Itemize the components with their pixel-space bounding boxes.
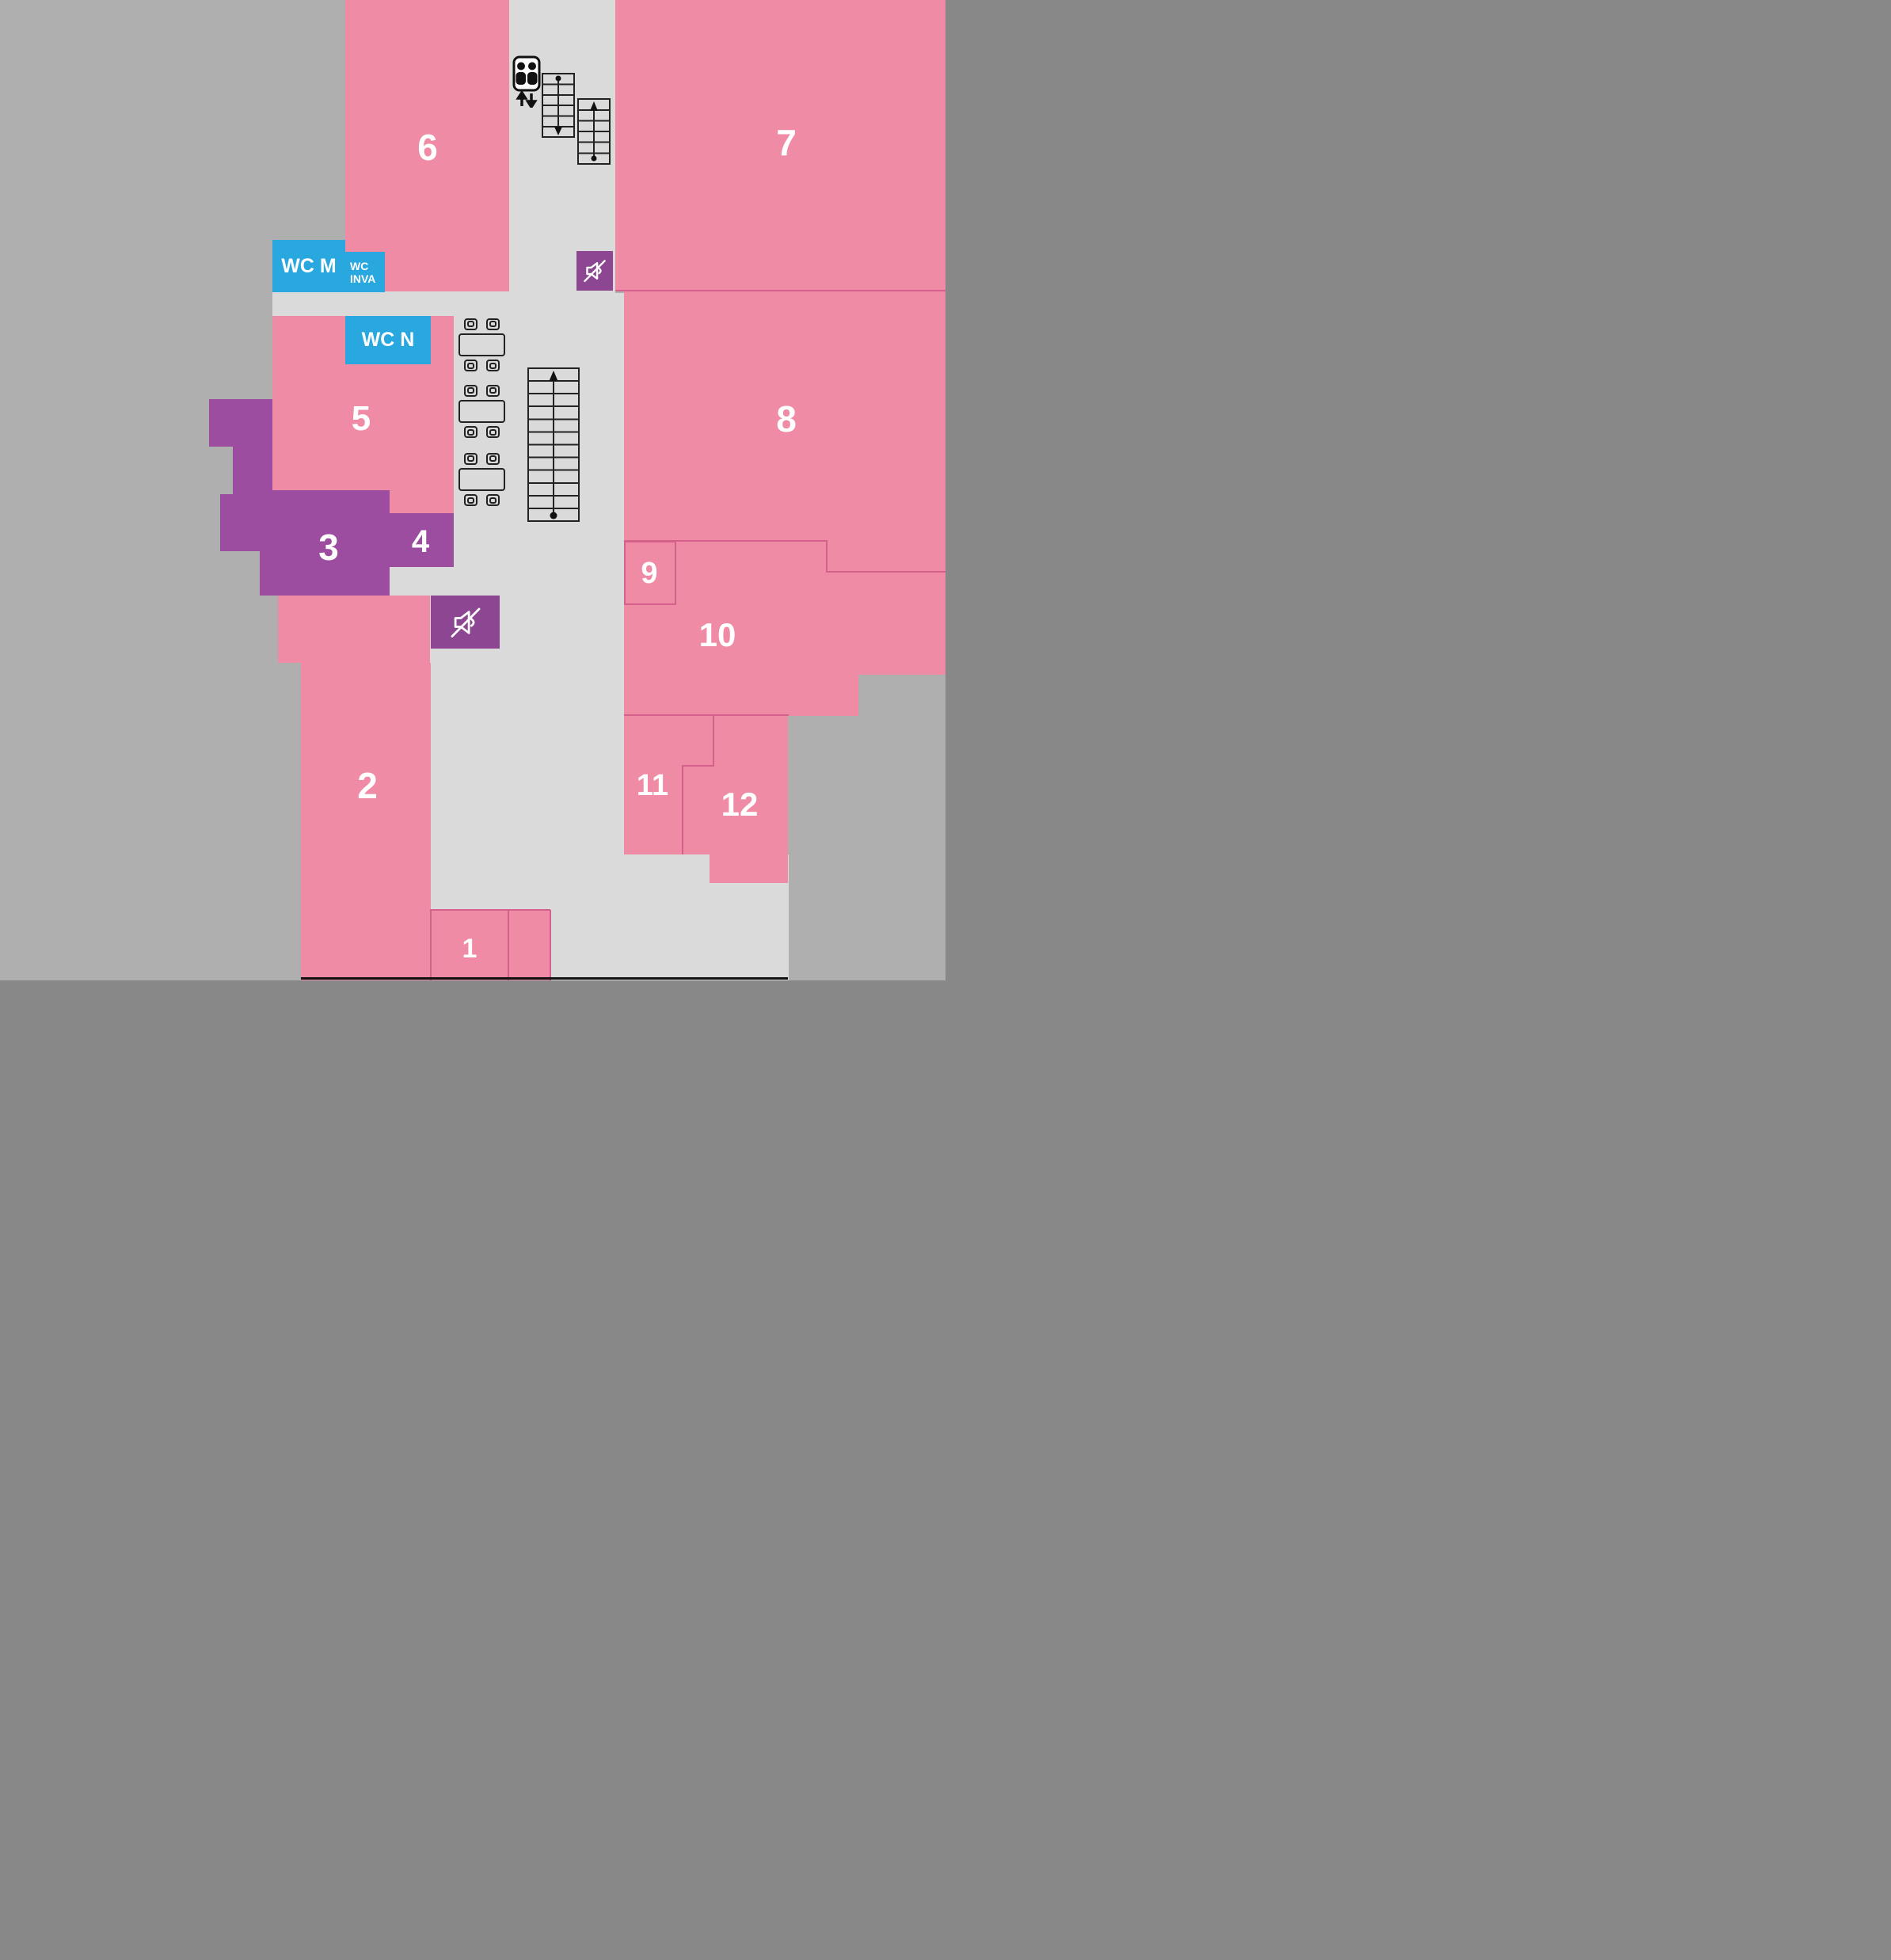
quiet-zone-box-bottom[interactable] [431,596,500,649]
wc-m-label: WC M [281,255,336,278]
table-group-1 [458,318,505,371]
border-room10-room11 [624,714,789,716]
border-right-block-right [550,910,551,980]
room-5-label: 5 [352,402,371,436]
room-2-upper[interactable] [278,596,430,663]
chair-icon [464,453,478,465]
room-5-extension[interactable] [390,490,454,513]
room-6-label: 6 [417,129,438,166]
room-3-label: 3 [318,529,339,565]
muted-speaker-icon [447,604,484,641]
table-group-3 [458,453,505,506]
room-12-lower[interactable] [710,854,788,883]
wc-n-label: WC N [362,329,415,352]
wc-n-room[interactable]: WC N [345,316,431,364]
border-room8-room10-left [624,540,828,542]
border-room7-room8 [615,290,945,291]
chair-icon [486,360,500,371]
chair-icon [486,426,500,438]
room-3-arm-top[interactable] [209,399,272,447]
building-bottom-edge [301,977,788,980]
room-11-label: 11 [637,771,668,801]
room-2-label: 2 [357,767,378,804]
border-room11-room12-h [682,765,714,767]
room-7-label: 7 [776,124,797,161]
room-10-lower[interactable] [624,675,858,716]
room-12-upper[interactable] [713,715,788,766]
chair-icon [464,360,478,371]
border-room11-room12-v2 [682,766,683,854]
border-room8-room10-right [826,571,945,573]
staircase-up-icon [577,98,611,165]
chair-icon [486,453,500,465]
chair-icon [486,318,500,330]
wc-inva-label-line1: WC [350,260,368,272]
floor-plan: WC M WC INVA WC N [0,0,945,980]
room-10-label: 10 [699,618,736,652]
chair-icon [464,318,478,330]
table-icon [458,333,505,356]
chair-icon [486,385,500,397]
room-4-label: 4 [412,526,429,558]
room-right-of-1[interactable] [508,910,550,980]
border-room11-room12-v1 [713,715,714,766]
table-group-2 [458,385,505,438]
chair-icon [464,426,478,438]
room-2[interactable] [301,663,431,980]
border-room8-step [826,540,828,573]
table-icon [458,400,505,423]
room-3-arm-mid[interactable] [220,494,272,551]
wc-inva-room[interactable]: WC INVA [345,252,385,292]
border-room1-right [508,910,509,980]
room-11-upper[interactable] [624,715,713,766]
room-1-label: 1 [462,935,478,962]
chair-icon [464,385,478,397]
chair-icon [464,494,478,506]
room-12-label: 12 [721,788,759,821]
wc-inva-label-line2: INVA [350,272,375,285]
staircase-main-icon [527,367,580,522]
chair-icon [486,494,500,506]
quiet-zone-box-top[interactable] [576,251,613,291]
elevator-icon [512,55,541,108]
table-icon [458,468,505,491]
border-room1-left [430,910,432,980]
border-room1-top [430,909,550,911]
room-8-label: 8 [776,401,797,437]
room-3-arm-narrow[interactable] [233,447,272,494]
staircase-down-icon [542,73,575,138]
room-8-extension[interactable] [826,541,945,573]
room-9-label: 9 [641,558,657,588]
room-3-arm-bottom[interactable] [260,551,272,596]
muted-speaker-icon [581,257,608,284]
wc-m-room[interactable]: WC M [272,240,345,292]
